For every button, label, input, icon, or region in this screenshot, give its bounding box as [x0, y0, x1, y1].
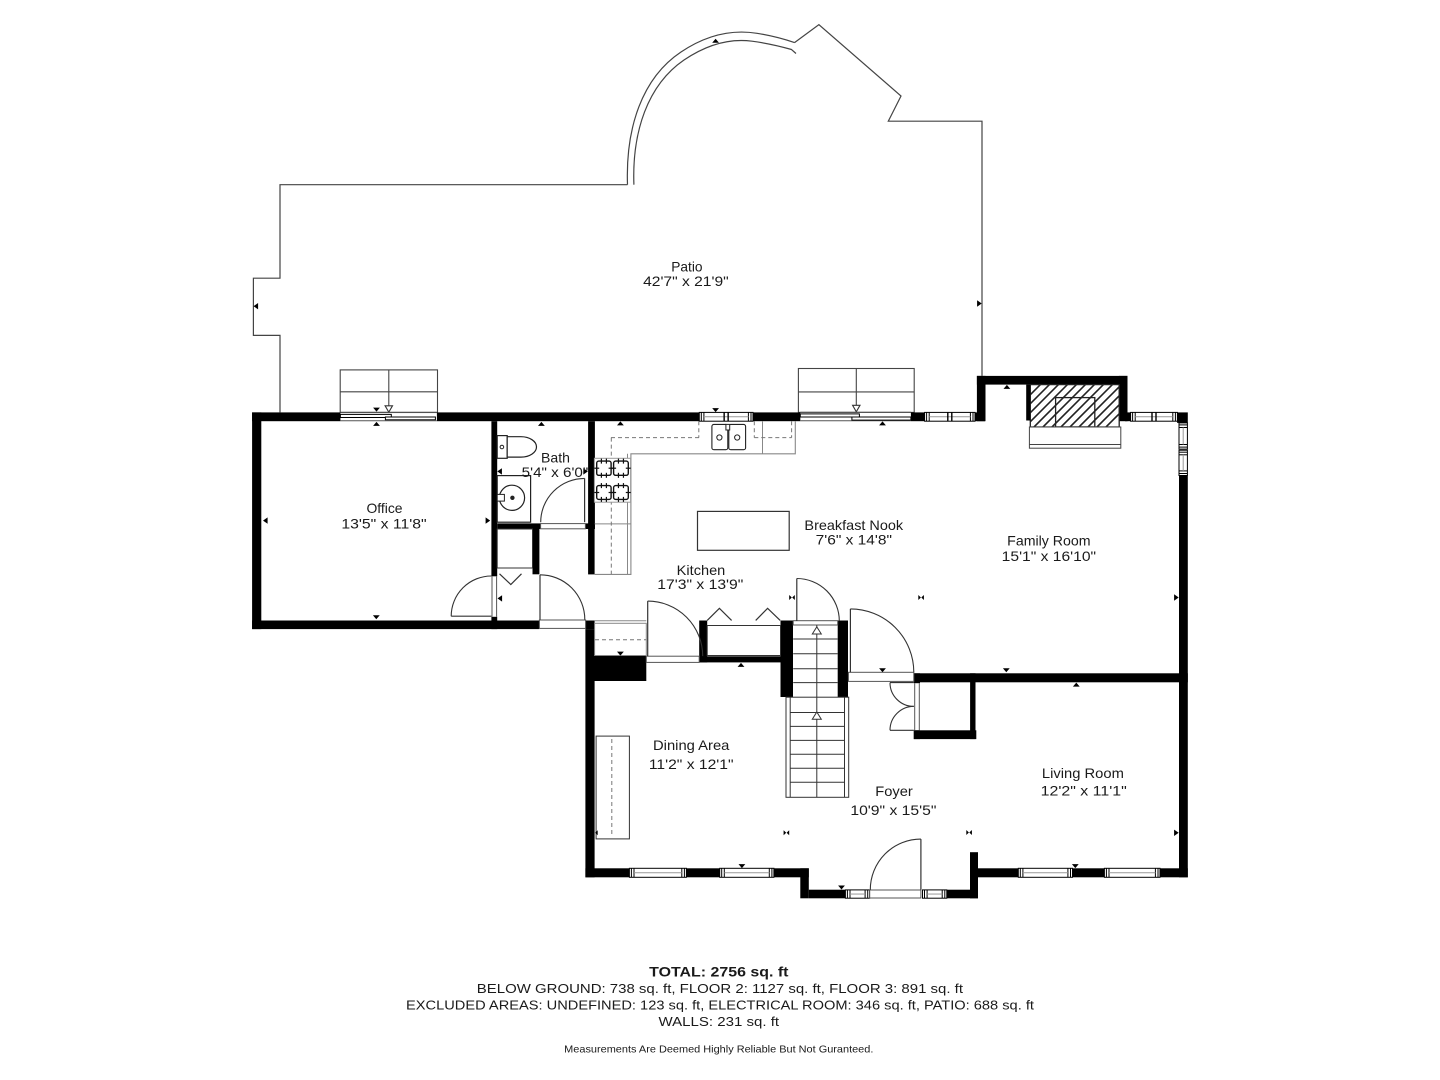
svg-text:12'2" x 11'1": 12'2" x 11'1"	[1041, 782, 1127, 798]
svg-text:10'9" x 15'5": 10'9" x 15'5"	[850, 802, 936, 818]
svg-text:BELOW GROUND: 738 sq. ft, FLOO: BELOW GROUND: 738 sq. ft, FLOOR 2: 1127 …	[477, 981, 964, 996]
svg-text:13'5" x 11'8": 13'5" x 11'8"	[341, 516, 426, 532]
svg-text:17'3" x 13'9": 17'3" x 13'9"	[657, 576, 743, 592]
svg-text:15'1" x 16'10": 15'1" x 16'10"	[1002, 548, 1096, 564]
svg-text:Dining Area: Dining Area	[653, 737, 730, 753]
svg-text:WALLS: 231 sq. ft: WALLS: 231 sq. ft	[659, 1014, 780, 1029]
svg-text:EXCLUDED AREAS: UNDEFINED: 123: EXCLUDED AREAS: UNDEFINED: 123 sq. ft, E…	[406, 997, 1034, 1012]
svg-text:Living Room: Living Room	[1042, 765, 1124, 781]
svg-text:5'4" x 6'0": 5'4" x 6'0"	[522, 464, 589, 480]
svg-text:Office: Office	[366, 500, 402, 516]
svg-text:Family Room: Family Room	[1007, 533, 1090, 549]
svg-text:7'6" x 14'8": 7'6" x 14'8"	[816, 531, 892, 547]
svg-text:Measurements Are Deemed Highly: Measurements Are Deemed Highly Reliable …	[564, 1043, 873, 1055]
svg-text:11'2" x 12'1": 11'2" x 12'1"	[649, 756, 734, 772]
svg-text:Foyer: Foyer	[875, 783, 913, 799]
svg-text:TOTAL: 2756 sq. ft: TOTAL: 2756 sq. ft	[649, 964, 789, 979]
svg-text:42'7" x 21'9": 42'7" x 21'9"	[643, 273, 729, 289]
